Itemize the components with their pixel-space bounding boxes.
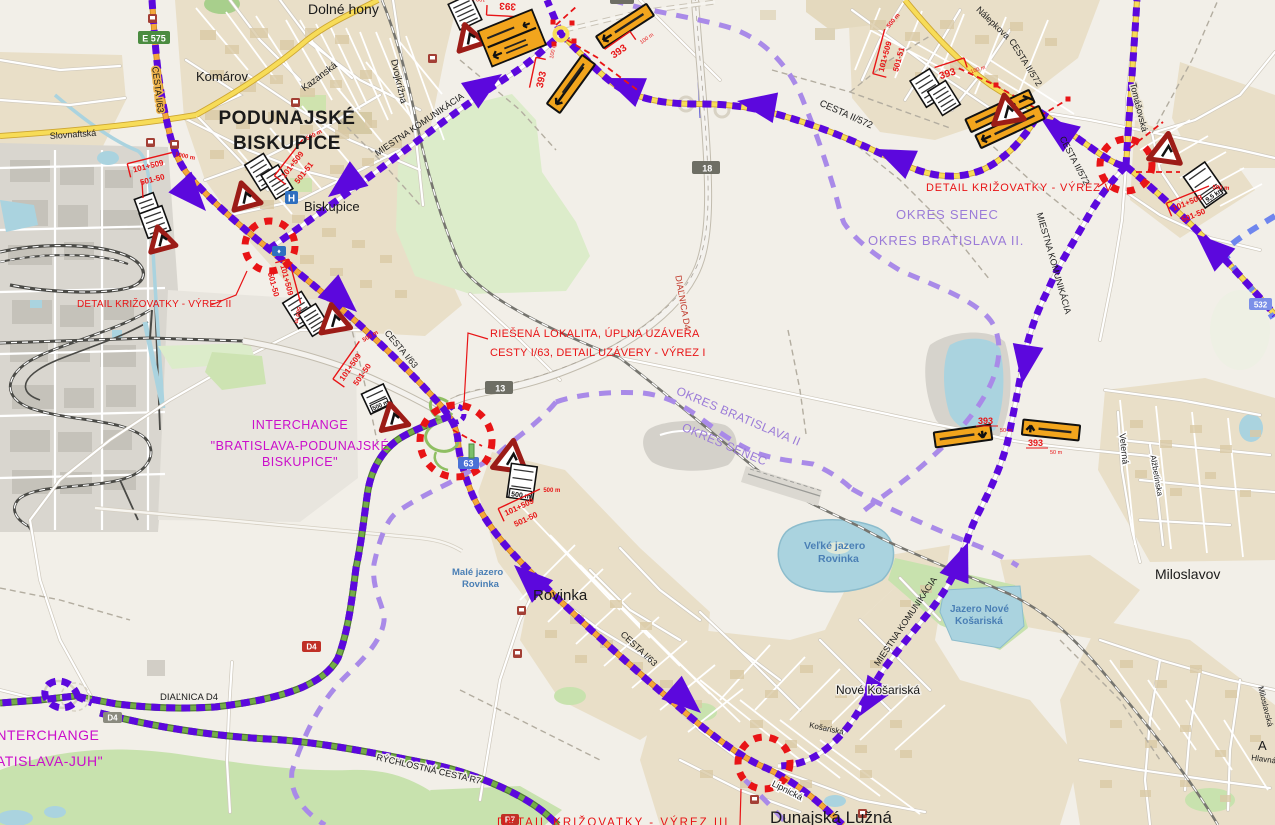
svg-text:393: 393 <box>499 0 517 12</box>
svg-text:OKRES BRATISLAVA II.: OKRES BRATISLAVA II. <box>868 233 1024 248</box>
svg-text:393: 393 <box>978 416 993 426</box>
svg-text:Komárov: Komárov <box>196 69 249 84</box>
svg-text:♦: ♦ <box>277 249 281 256</box>
svg-text:Rovinka: Rovinka <box>533 587 588 604</box>
svg-text:INTERCHANGE: INTERCHANGE <box>252 418 348 432</box>
svg-text:Rovinka: Rovinka <box>818 553 859 565</box>
svg-text:PODUNAJSKÉ: PODUNAJSKÉ <box>219 107 356 129</box>
svg-text:H: H <box>288 194 295 205</box>
svg-text:BISKUPICE": BISKUPICE" <box>262 455 338 469</box>
svg-text:DIAĽNICA D4: DIAĽNICA D4 <box>160 692 218 703</box>
svg-text:INTERCHANGE: INTERCHANGE <box>0 727 99 743</box>
svg-text:500 m: 500 m <box>543 488 560 494</box>
svg-text:DETAIL KRIŽOVATKY - VÝREZ III: DETAIL KRIŽOVATKY - VÝREZ III <box>497 816 729 825</box>
svg-text:Košariská: Košariská <box>955 616 1003 627</box>
svg-text:500 m: 500 m <box>1212 185 1229 192</box>
svg-text:A: A <box>1258 738 1267 753</box>
svg-text:Dunajská Lužná: Dunajská Lužná <box>770 808 892 825</box>
svg-text:BISKUPICE: BISKUPICE <box>233 133 341 154</box>
svg-text:13: 13 <box>493 384 506 394</box>
svg-text:"BRATISLAVA-PODUNAJSKÉ: "BRATISLAVA-PODUNAJSKÉ <box>211 438 390 453</box>
svg-text:50 m: 50 m <box>1050 450 1063 456</box>
svg-text:"BRATISLAVA-JUH": "BRATISLAVA-JUH" <box>0 753 103 769</box>
svg-text:Rovinka: Rovinka <box>462 579 500 590</box>
svg-text:Nové Košariská: Nové Košariská <box>836 683 920 697</box>
svg-text:100 m: 100 m <box>470 0 486 2</box>
svg-text:Biskupice: Biskupice <box>304 199 360 214</box>
svg-text:Veľké jazero: Veľké jazero <box>804 540 865 552</box>
svg-text:CESTY I/63, DETAIL UZÁVERY - V: CESTY I/63, DETAIL UZÁVERY - VÝREZ I <box>490 346 706 359</box>
svg-text:Miloslavov: Miloslavov <box>1155 566 1220 582</box>
svg-text:DETAIL KRIŽOVATKY - VÝREZ V: DETAIL KRIŽOVATKY - VÝREZ V <box>926 181 1113 194</box>
svg-text:532: 532 <box>1254 301 1268 310</box>
svg-text:393: 393 <box>1028 438 1043 448</box>
svg-text:OKRES SENEC: OKRES SENEC <box>896 207 999 222</box>
svg-text:Jazero Nové: Jazero Nové <box>950 604 1009 615</box>
svg-text:50 m: 50 m <box>1000 428 1013 434</box>
svg-text:Dolné hony: Dolné hony <box>308 1 379 17</box>
svg-text:63: 63 <box>463 459 473 469</box>
svg-text:18: 18 <box>700 164 713 174</box>
svg-text:RIEŠENÁ LOKALITA, ÚPLNA UZÁVER: RIEŠENÁ LOKALITA, ÚPLNA UZÁVERA <box>490 327 700 340</box>
svg-text:Malé jazero: Malé jazero <box>452 567 503 578</box>
svg-text:D4: D4 <box>107 714 118 723</box>
svg-text:DETAIL KRIŽOVATKY - VÝREZ II: DETAIL KRIŽOVATKY - VÝREZ II <box>77 297 232 310</box>
svg-text:E 575: E 575 <box>142 34 166 44</box>
svg-text:D4: D4 <box>306 643 317 652</box>
